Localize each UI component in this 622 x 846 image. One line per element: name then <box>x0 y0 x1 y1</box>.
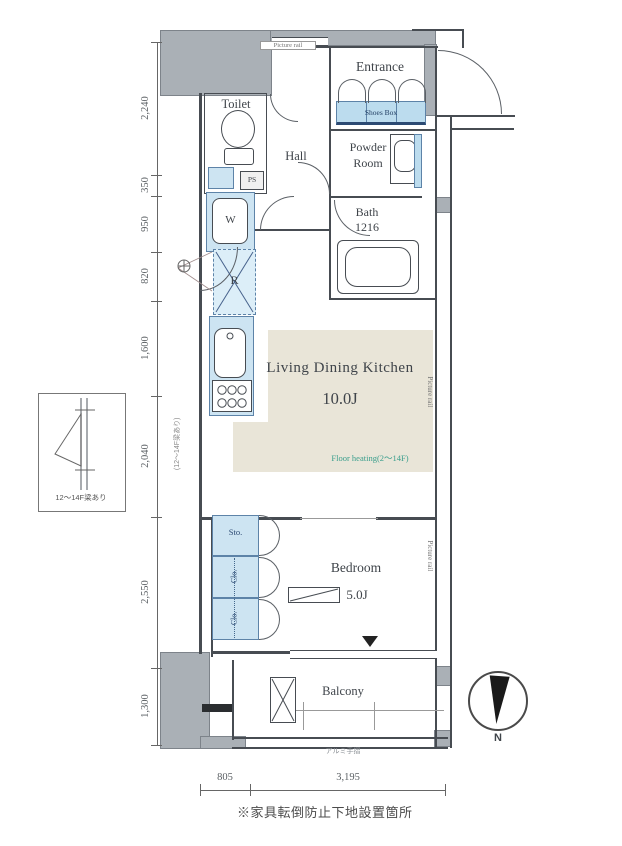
storage-label: Sto. <box>212 528 259 537</box>
shoebox-door-arc-1 <box>338 79 366 103</box>
dim-left-2550: 2,550 <box>140 562 152 622</box>
dim-tick <box>200 784 201 796</box>
entrance-label: Entrance <box>334 60 426 75</box>
wall-line-powder-top <box>329 129 436 131</box>
floorplan-canvas: Toilet Hall Entrance Powder Room Bath 12… <box>0 0 622 846</box>
closet-door-arc-3 <box>259 599 280 640</box>
wall-balcony-right-pillar <box>436 666 451 686</box>
powder-mirror-cabinet <box>414 134 422 188</box>
dim-tick <box>151 396 162 397</box>
balcony-label: Balcony <box>308 685 378 699</box>
wall-line-step1 <box>412 29 464 31</box>
dim-tick <box>151 175 162 176</box>
hall-ldk-door-arc <box>260 196 294 230</box>
closet-door-arc-1 <box>259 515 280 556</box>
wall-line-bedroom-bottom <box>211 651 293 654</box>
wall-line-right-inner <box>435 46 437 748</box>
shoebox-door-arc-3 <box>398 79 426 103</box>
beam-note-wall-label: (12〜14F梁あり) <box>174 408 182 480</box>
balcony-floor-line <box>296 710 444 711</box>
dim-tick <box>151 196 162 197</box>
dim-tick <box>151 301 162 302</box>
balcony-tick2 <box>374 702 375 730</box>
triangle-marker <box>362 636 378 647</box>
wall-line-bath-bottom <box>329 298 436 300</box>
ps-label: PS <box>240 176 264 184</box>
ldk-size-label: 10.0J <box>270 390 410 408</box>
bathtub-inner <box>345 247 411 287</box>
dim-tick <box>151 252 162 253</box>
dim-left-950: 950 <box>140 194 152 254</box>
beam-diagram-drawing <box>39 394 124 494</box>
hall-label: Hall <box>270 150 322 164</box>
wall-line-left <box>199 93 202 654</box>
dim-left-1600: 1,600 <box>140 318 152 378</box>
furniture-note: ※家具転倒防止下地設置箇所 <box>237 806 457 820</box>
wall-line-mid-vertical <box>329 48 331 300</box>
powder-room-label-2: Room <box>330 157 406 170</box>
wall-line-right-outer <box>450 117 452 748</box>
compass-n-label: N <box>490 732 506 744</box>
wall-line-right-cap1 <box>435 115 515 117</box>
dim-tick <box>151 517 162 518</box>
toilet-tank <box>224 148 254 165</box>
dim-left-line <box>157 42 158 745</box>
dim-tick <box>151 42 162 43</box>
wall-line-step2 <box>462 29 464 48</box>
toilet-label: Toilet <box>206 98 266 112</box>
toilet-bowl <box>221 110 255 148</box>
water-heater-box <box>208 167 234 189</box>
wall-top-left-block <box>160 30 272 96</box>
powder-door-arc <box>298 162 330 194</box>
dim-tick <box>445 784 446 796</box>
beam-diagram-box: 12〜14F梁あり <box>38 393 126 512</box>
bath-label: Bath <box>336 206 398 219</box>
dim-left-2040: 2,040 <box>140 426 152 486</box>
wall-right-pillar <box>436 197 451 213</box>
dim-tick <box>151 668 162 669</box>
black-sill <box>202 704 232 712</box>
floor-heating-label: Floor heating(2〜14F) <box>300 454 440 463</box>
dim-left-2240: 2,240 <box>140 78 152 138</box>
dim-bottom-line <box>200 790 446 791</box>
wall-line-ldk-bedroom-right <box>376 517 437 520</box>
wall-line-balcony-left <box>232 660 234 740</box>
balcony-rail-line1 <box>232 737 448 739</box>
wall-bottom-left-block <box>160 652 210 749</box>
entrance-door-arc <box>438 50 502 114</box>
dim-bottom-805: 805 <box>200 771 250 785</box>
aluminum-rail-label: アルミ手摺 <box>305 748 381 756</box>
picture-rail-label-ldk: Picture rail <box>425 350 433 434</box>
closet-door-arc-2 <box>259 557 280 598</box>
washer-label: W <box>206 214 255 226</box>
shoes-box-label: Shoes Box <box>336 109 426 117</box>
kitchen-stove <box>212 380 252 412</box>
compass-needle <box>486 675 509 724</box>
wall-line-powder-bath <box>329 196 422 198</box>
balcony-hatch-box <box>270 677 296 723</box>
bath-size-label: 1216 <box>336 221 398 234</box>
window-bedroom-balcony <box>290 650 437 659</box>
wall-line-right-cap2 <box>452 128 514 130</box>
closet-label-1: Clo. <box>231 556 240 596</box>
picture-rail-label-bedroom: Picture rail <box>425 526 433 586</box>
balcony-tick1 <box>303 702 304 730</box>
picture-rail-label-top: Picture rail <box>260 41 316 50</box>
fridge-label: R <box>213 274 256 287</box>
bedroom-label: Bedroom <box>312 561 400 576</box>
ldk-floor-area-lower <box>233 422 433 472</box>
dim-tick <box>250 784 251 796</box>
shoebox-door-arc-2 <box>368 79 396 103</box>
sliding-door-line <box>300 518 378 519</box>
ldk-label: Living Dining Kitchen <box>240 360 440 377</box>
dim-bottom-3195: 3,195 <box>250 771 446 785</box>
dim-left-820: 820 <box>140 246 152 306</box>
beam-note-caption: 12〜14F梁あり <box>39 494 123 502</box>
bedroom-size-label: 5.0J <box>332 588 382 602</box>
dim-tick <box>151 745 162 746</box>
closet-label-2: Clo. <box>231 598 240 638</box>
dim-left-1300: 1,300 <box>140 676 152 736</box>
powder-room-label-1: Powder <box>330 141 406 154</box>
toilet-door-arc <box>270 94 298 122</box>
